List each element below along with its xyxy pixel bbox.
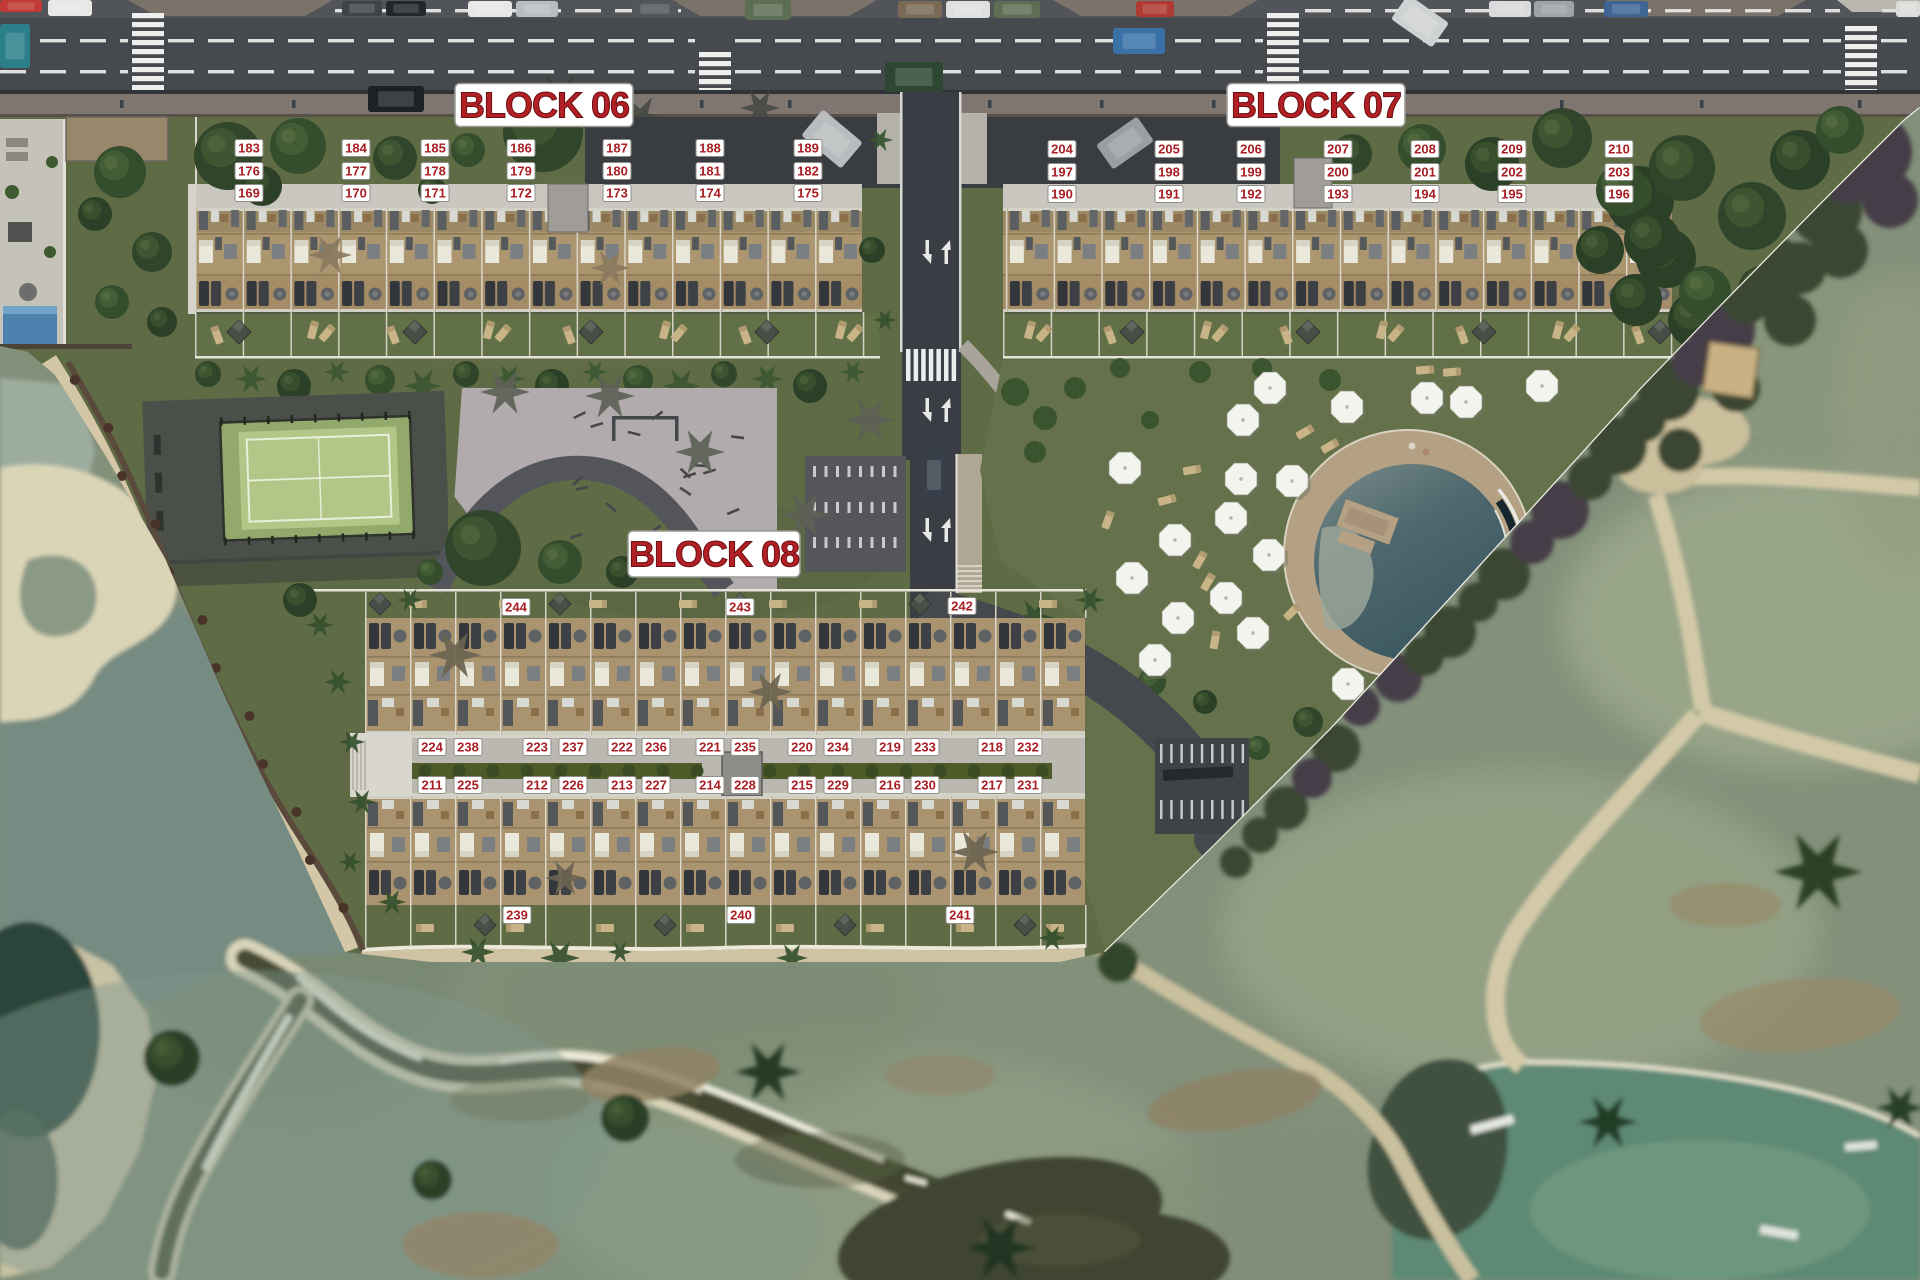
svg-text:189: 189 (797, 141, 819, 156)
svg-text:226: 226 (562, 778, 584, 793)
svg-text:170: 170 (345, 186, 367, 201)
svg-text:222: 222 (611, 740, 633, 755)
svg-text:204: 204 (1051, 142, 1073, 157)
svg-text:211: 211 (422, 778, 443, 793)
svg-text:193: 193 (1327, 187, 1349, 202)
svg-text:213: 213 (611, 778, 633, 793)
svg-text:240: 240 (730, 908, 752, 923)
svg-text:BLOCK 08: BLOCK 08 (629, 534, 799, 575)
svg-text:227: 227 (645, 778, 667, 793)
svg-text:228: 228 (734, 778, 756, 793)
svg-text:233: 233 (914, 740, 936, 755)
svg-text:202: 202 (1501, 165, 1523, 180)
svg-text:231: 231 (1017, 778, 1039, 793)
svg-text:238: 238 (457, 740, 479, 755)
svg-text:230: 230 (914, 778, 936, 793)
svg-text:207: 207 (1327, 142, 1349, 157)
svg-text:198: 198 (1158, 165, 1180, 180)
svg-text:185: 185 (424, 141, 446, 156)
svg-text:218: 218 (981, 740, 1003, 755)
svg-text:214: 214 (699, 778, 721, 793)
svg-text:169: 169 (238, 186, 260, 201)
svg-text:178: 178 (424, 164, 446, 179)
svg-text:235: 235 (734, 740, 756, 755)
svg-text:177: 177 (345, 164, 367, 179)
svg-text:206: 206 (1240, 142, 1262, 157)
svg-text:176: 176 (238, 164, 260, 179)
svg-text:242: 242 (951, 599, 973, 614)
svg-text:241: 241 (949, 908, 971, 923)
svg-text:234: 234 (827, 740, 849, 755)
svg-text:195: 195 (1501, 187, 1523, 202)
svg-text:205: 205 (1158, 142, 1180, 157)
svg-text:183: 183 (238, 141, 260, 156)
svg-text:BLOCK 06: BLOCK 06 (459, 85, 629, 126)
svg-text:237: 237 (562, 740, 584, 755)
svg-text:196: 196 (1608, 187, 1630, 202)
svg-text:201: 201 (1414, 165, 1436, 180)
svg-text:244: 244 (505, 600, 527, 615)
svg-text:190: 190 (1051, 187, 1073, 202)
svg-text:224: 224 (421, 740, 443, 755)
svg-text:187: 187 (606, 141, 628, 156)
svg-text:186: 186 (510, 141, 532, 156)
svg-text:215: 215 (791, 778, 813, 793)
svg-text:172: 172 (510, 186, 532, 201)
svg-text:180: 180 (606, 164, 628, 179)
svg-text:217: 217 (981, 778, 1003, 793)
svg-text:174: 174 (699, 186, 721, 201)
svg-text:175: 175 (797, 186, 819, 201)
svg-text:212: 212 (526, 778, 548, 793)
svg-text:200: 200 (1327, 165, 1349, 180)
svg-text:BLOCK 07: BLOCK 07 (1231, 85, 1401, 126)
svg-text:191: 191 (1158, 187, 1180, 202)
svg-text:209: 209 (1501, 142, 1523, 157)
svg-text:199: 199 (1240, 165, 1262, 180)
svg-text:188: 188 (699, 141, 721, 156)
svg-text:243: 243 (729, 600, 751, 615)
svg-text:197: 197 (1051, 165, 1073, 180)
svg-text:229: 229 (827, 778, 849, 793)
svg-text:208: 208 (1414, 142, 1436, 157)
svg-text:171: 171 (424, 186, 446, 201)
svg-text:210: 210 (1608, 142, 1630, 157)
svg-text:223: 223 (526, 740, 548, 755)
svg-text:181: 181 (699, 164, 721, 179)
svg-text:232: 232 (1017, 740, 1039, 755)
svg-text:239: 239 (506, 908, 528, 923)
svg-text:184: 184 (345, 141, 367, 156)
svg-text:192: 192 (1240, 187, 1262, 202)
svg-text:173: 173 (606, 186, 628, 201)
svg-text:194: 194 (1414, 187, 1436, 202)
svg-text:225: 225 (457, 778, 479, 793)
svg-text:179: 179 (510, 164, 532, 179)
svg-text:216: 216 (879, 778, 901, 793)
svg-text:236: 236 (645, 740, 667, 755)
svg-text:203: 203 (1608, 165, 1630, 180)
svg-text:182: 182 (797, 164, 819, 179)
svg-text:221: 221 (699, 740, 721, 755)
svg-text:220: 220 (791, 740, 813, 755)
svg-text:219: 219 (879, 740, 901, 755)
